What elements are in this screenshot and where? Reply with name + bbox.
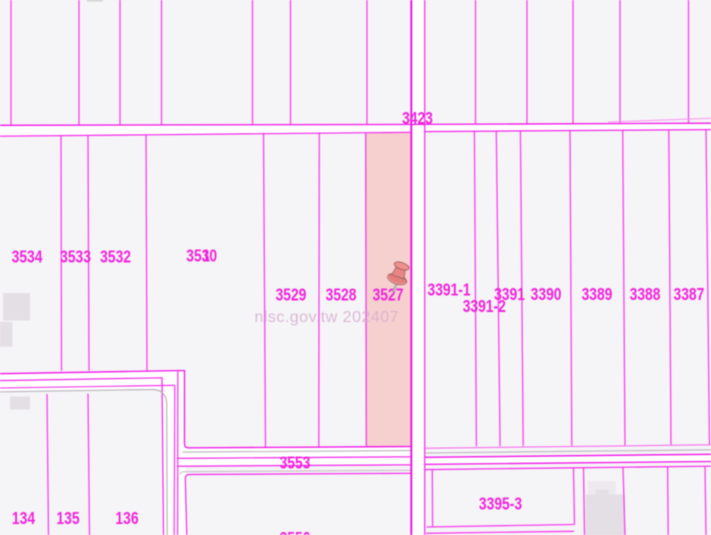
svg-text:136: 136 [115,508,138,528]
svg-text:3532: 3532 [100,247,131,267]
svg-text:nlsc.gov.tw 202407: nlsc.gov.tw 202407 [255,309,399,326]
svg-text:134: 134 [12,508,35,528]
svg-text:3556: 3556 [280,528,311,535]
svg-text:3391-2: 3391-2 [463,296,506,316]
svg-text:1: 1 [202,246,210,266]
svg-text:3389: 3389 [582,284,613,304]
svg-text:3528: 3528 [326,285,357,305]
svg-text:3529: 3529 [276,285,307,305]
svg-text:3387: 3387 [674,284,705,304]
svg-text:135: 135 [56,508,79,528]
svg-text:3534: 3534 [12,247,43,267]
svg-text:3388: 3388 [630,284,661,304]
svg-text:3390: 3390 [531,284,562,304]
svg-text:3527: 3527 [373,285,404,305]
svg-text:3395-3: 3395-3 [479,494,522,514]
svg-text:3533: 3533 [60,247,91,267]
svg-text:3423: 3423 [402,108,433,128]
svg-text:3553: 3553 [280,453,311,473]
